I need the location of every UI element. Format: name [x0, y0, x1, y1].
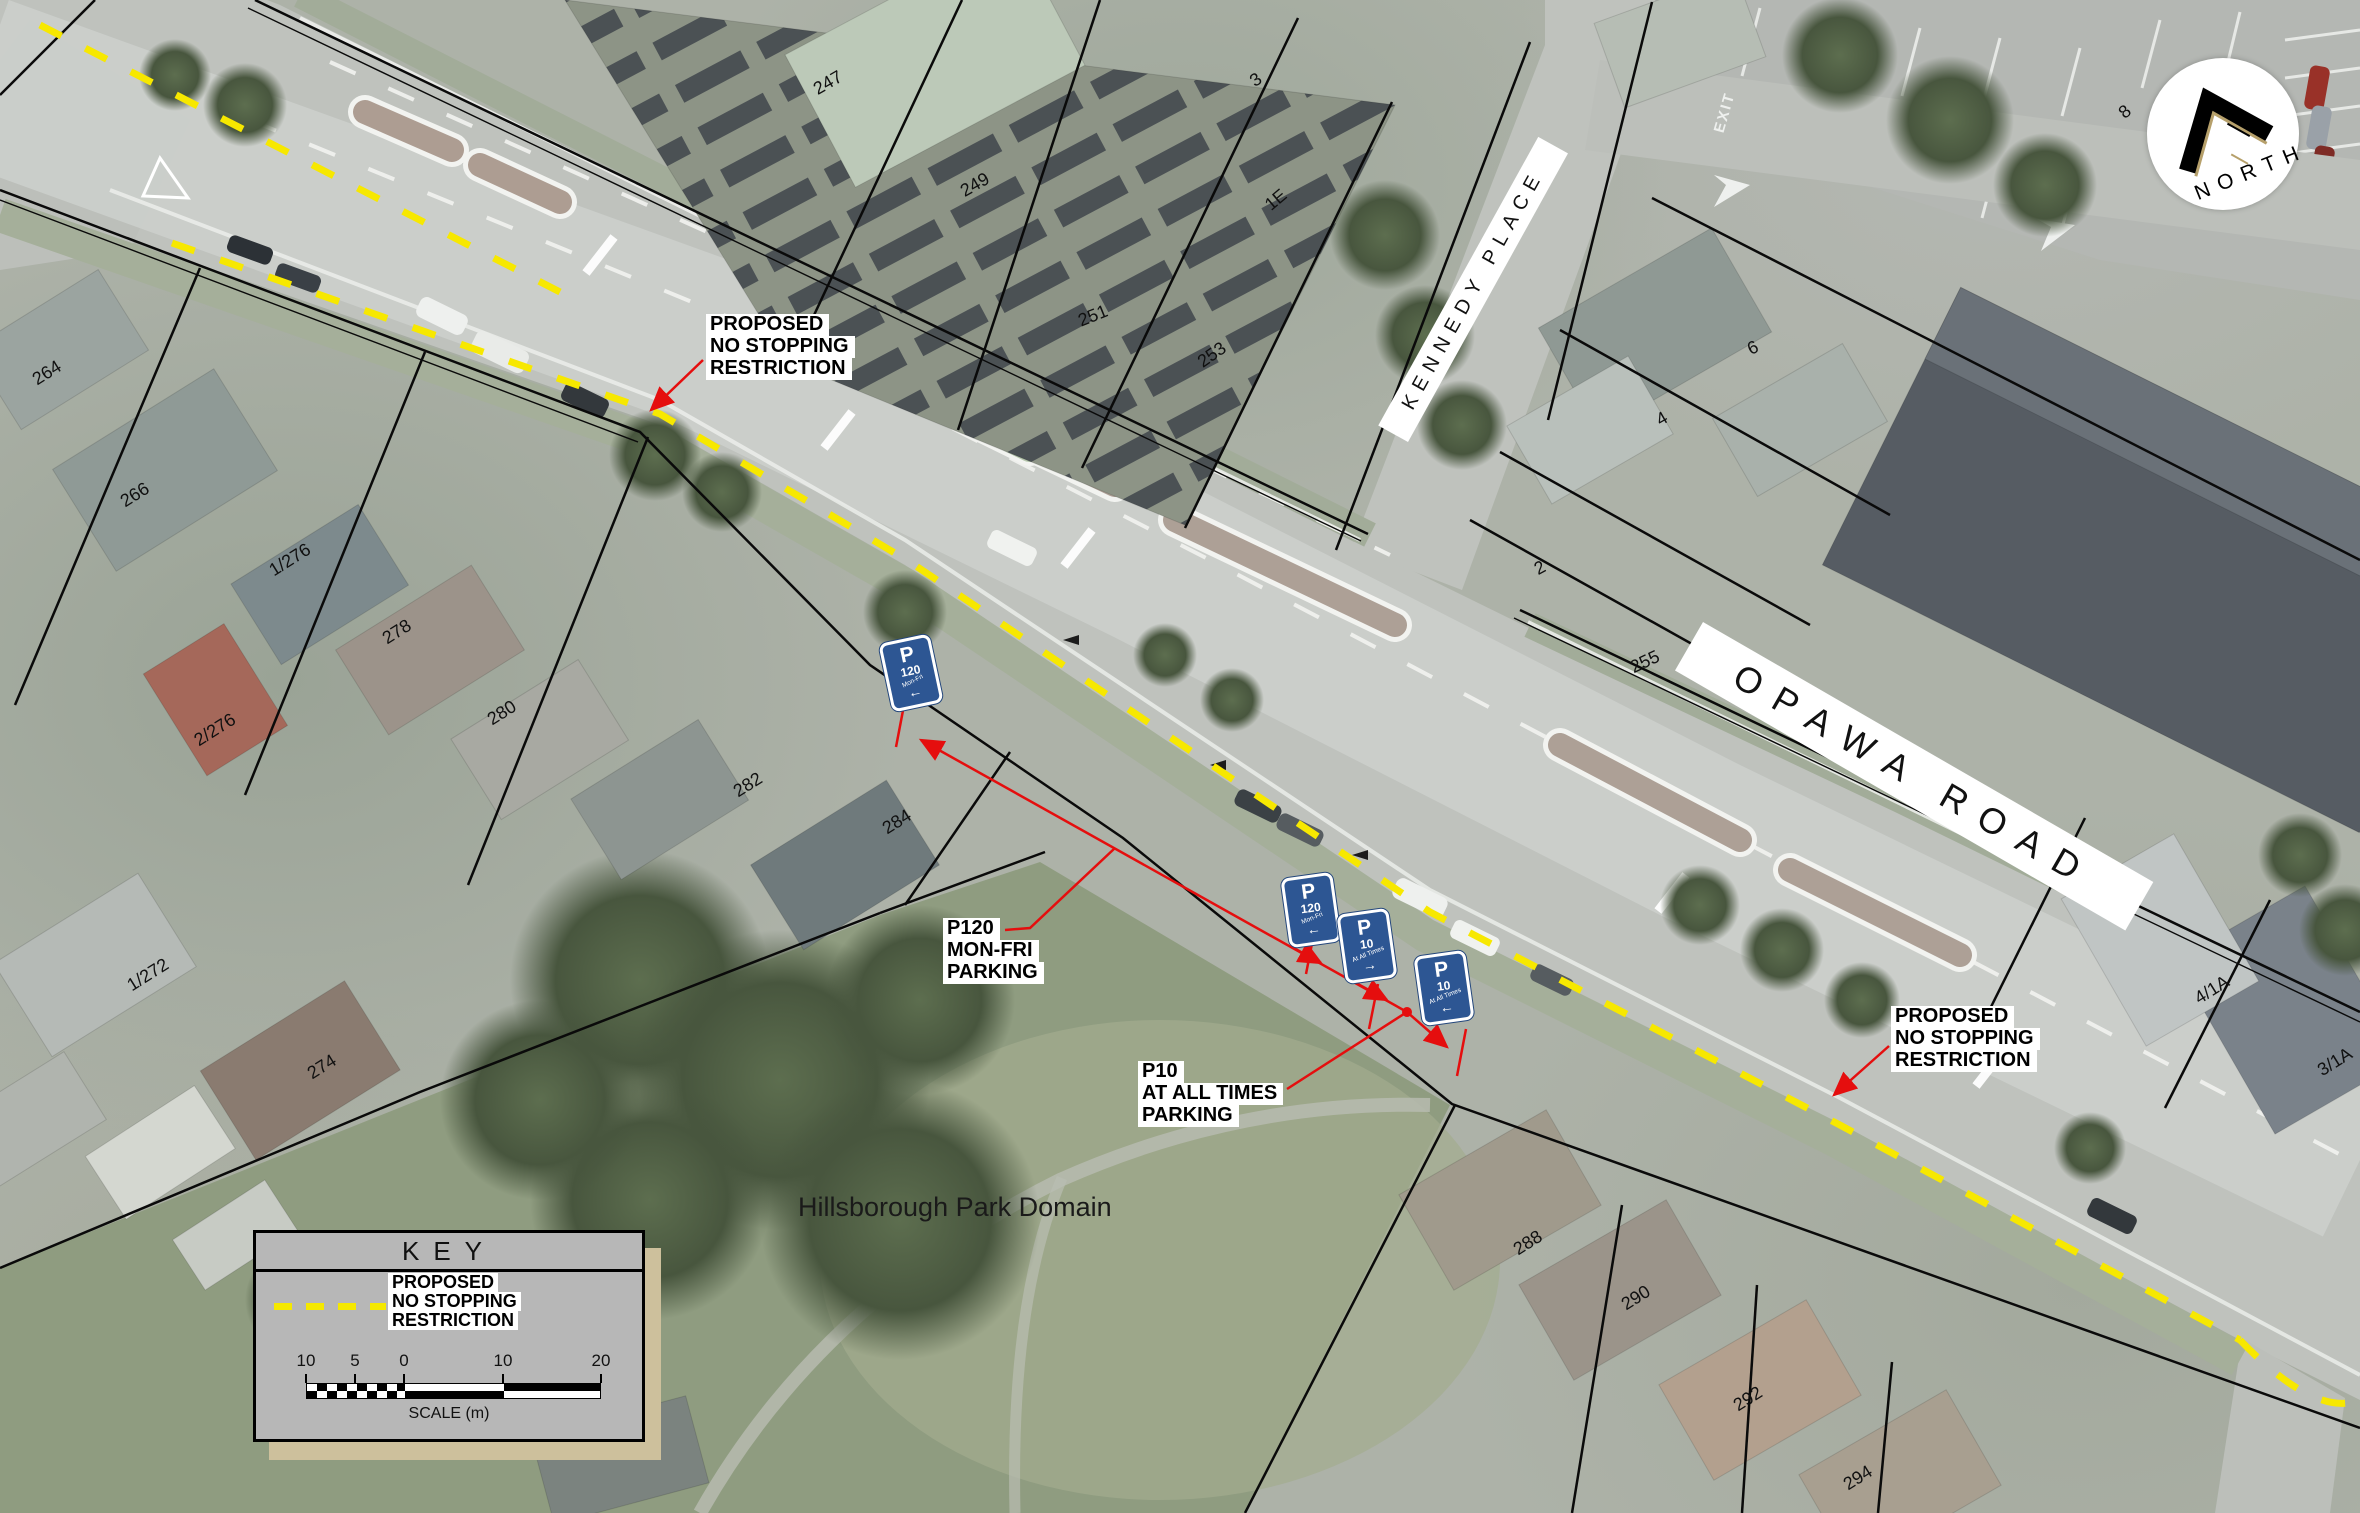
scale-tick-mark	[305, 1374, 307, 1383]
map-canvas: OPAWA ROAD KENNEDY PLACE Hillsborough Pa…	[0, 0, 2360, 1513]
scale-tick-label: 20	[592, 1351, 611, 1371]
callout-line: PARKING	[1138, 1105, 1239, 1127]
scale-tick-mark	[600, 1374, 602, 1383]
scale-caption: SCALE (m)	[256, 1405, 642, 1423]
callout-line: P10	[1138, 1061, 1184, 1083]
scale-bar	[306, 1383, 601, 1399]
scale-tick-mark	[403, 1374, 405, 1383]
parking-sign-p120-east: P 120 Mon-Fri ←	[1280, 872, 1341, 949]
callout-line: P120	[943, 918, 1000, 940]
scale-tick-label: 0	[399, 1351, 408, 1371]
park-area	[0, 850, 1500, 1513]
callout-line: PARKING	[943, 962, 1044, 984]
callout-line: NO STOPPING	[1891, 1028, 2040, 1050]
scale-tick-label: 10	[297, 1351, 316, 1371]
scale-tick-label: 10	[494, 1351, 513, 1371]
parking-sign-p10-east: P 10 At All Times ←	[1413, 950, 1474, 1027]
key-legend: KEY PROPOSED NO STOPPING RESTRICTION 10 …	[253, 1230, 645, 1442]
callout-line: RESTRICTION	[706, 358, 852, 380]
callout-line: PROPOSED	[1891, 1006, 2014, 1028]
scale-bar-checker	[307, 1384, 405, 1391]
scale-bar-segment	[504, 1391, 600, 1398]
key-entry-line: NO STOPPING	[388, 1292, 521, 1311]
scale-bar-segment	[504, 1384, 600, 1391]
callout-line: AT ALL TIMES	[1138, 1083, 1283, 1105]
scale-bar-checker	[307, 1391, 405, 1398]
scale-tick-mark	[502, 1374, 504, 1383]
scale-tick-label: 5	[350, 1351, 359, 1371]
no-stopping-sample-line	[274, 1303, 386, 1310]
scale-bar-segment	[405, 1384, 504, 1391]
callout-line: RESTRICTION	[1891, 1050, 2037, 1072]
park-name-label: Hillsborough Park Domain	[798, 1192, 1112, 1223]
callout-no-stopping-west: PROPOSED NO STOPPING RESTRICTION	[706, 314, 855, 380]
callout-line: PROPOSED	[706, 314, 829, 336]
parking-sign-p10-middle: P 10 At All Times →	[1336, 908, 1397, 985]
north-arrow: NORTH	[2147, 58, 2299, 210]
callout-p10-parking: P10 AT ALL TIMES PARKING	[1138, 1061, 1283, 1127]
scale-bar-segment	[405, 1391, 504, 1398]
scale-tick-mark	[354, 1374, 356, 1383]
north-label: NORTH	[2191, 139, 2299, 205]
key-entry-line: RESTRICTION	[388, 1311, 518, 1330]
callout-line: NO STOPPING	[706, 336, 855, 358]
callout-no-stopping-east: PROPOSED NO STOPPING RESTRICTION	[1891, 1006, 2040, 1072]
callout-p120-parking: P120 MON-FRI PARKING	[943, 918, 1044, 984]
callout-line: MON-FRI	[943, 940, 1039, 962]
key-entry-line: PROPOSED	[388, 1273, 498, 1292]
key-entry-label: PROPOSED NO STOPPING RESTRICTION	[388, 1273, 521, 1330]
key-title: KEY	[256, 1233, 642, 1272]
